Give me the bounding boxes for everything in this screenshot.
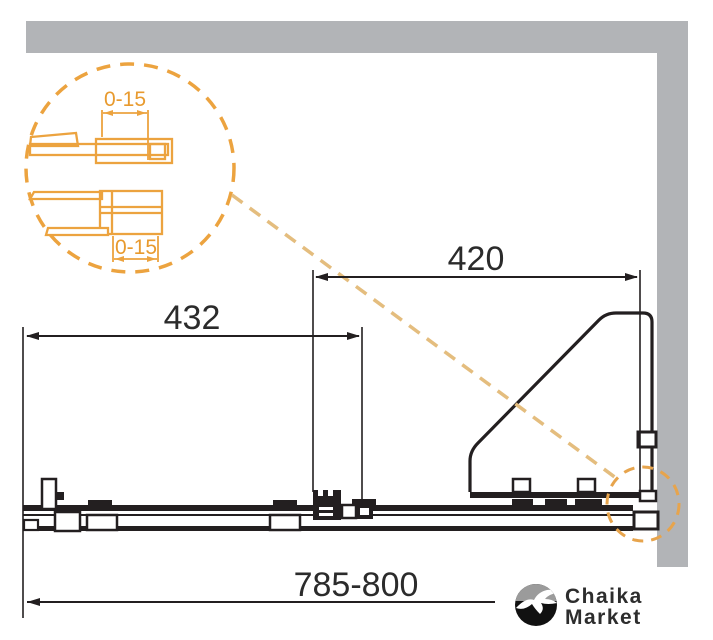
adjustment-range-label-top: 0-15 [104,88,146,111]
profile-endcap [150,144,165,159]
dimension-label-432: 432 [164,299,221,337]
panel-clip-3 [575,499,602,505]
wall-profile [634,512,658,529]
brand-name-line1: Chaika [565,585,643,608]
dimension-785-800: 785-800 [27,566,495,606]
panel-clip-1 [512,499,533,505]
wall-right-bar [657,21,688,567]
profile-detail-bottom [30,191,162,235]
dimension-label-420: 420 [448,240,505,278]
panel-clip-2 [545,499,567,505]
rail-clip-1 [88,500,112,505]
wall-top-bar [26,21,688,53]
panel-tab-left [513,479,530,492]
profile-detail-top [30,133,172,163]
roller-middle [270,515,300,530]
left-guide-block [55,512,80,531]
adjustment-range-label-bottom: 0-15 [115,236,157,259]
panel-tab-right [578,479,595,492]
diagram-svg: 0-15 0-15 [0,0,713,640]
bracket-notch [56,492,64,500]
panel-bottom-rail [470,492,656,498]
side-panel [470,313,656,492]
rail-clip-2 [273,500,297,505]
brand-name-line2: Market [565,606,642,629]
technical-diagram: 0-15 0-15 [0,0,713,640]
detail-dimension-top [102,110,148,160]
profile-strip-top [30,192,102,199]
left-wall-bracket [42,479,56,509]
panel-end-cap [640,491,656,501]
left-end-cap [24,520,38,530]
profile-strip-bottom [46,228,108,235]
roller-left [87,515,117,530]
brand-name: Chaika Market [565,585,643,629]
brand-logo: Chaika Market [515,584,643,629]
carriage-slider [342,505,356,518]
rail-clip-3 [352,499,376,505]
side-panel-outline [470,313,652,492]
carriage-lock [357,505,373,519]
roller-carriage [313,490,341,520]
detail-callout: 0-15 0-15 [26,64,234,272]
dimension-label-785-800: 785-800 [294,566,419,604]
seagull-icon [515,584,557,626]
